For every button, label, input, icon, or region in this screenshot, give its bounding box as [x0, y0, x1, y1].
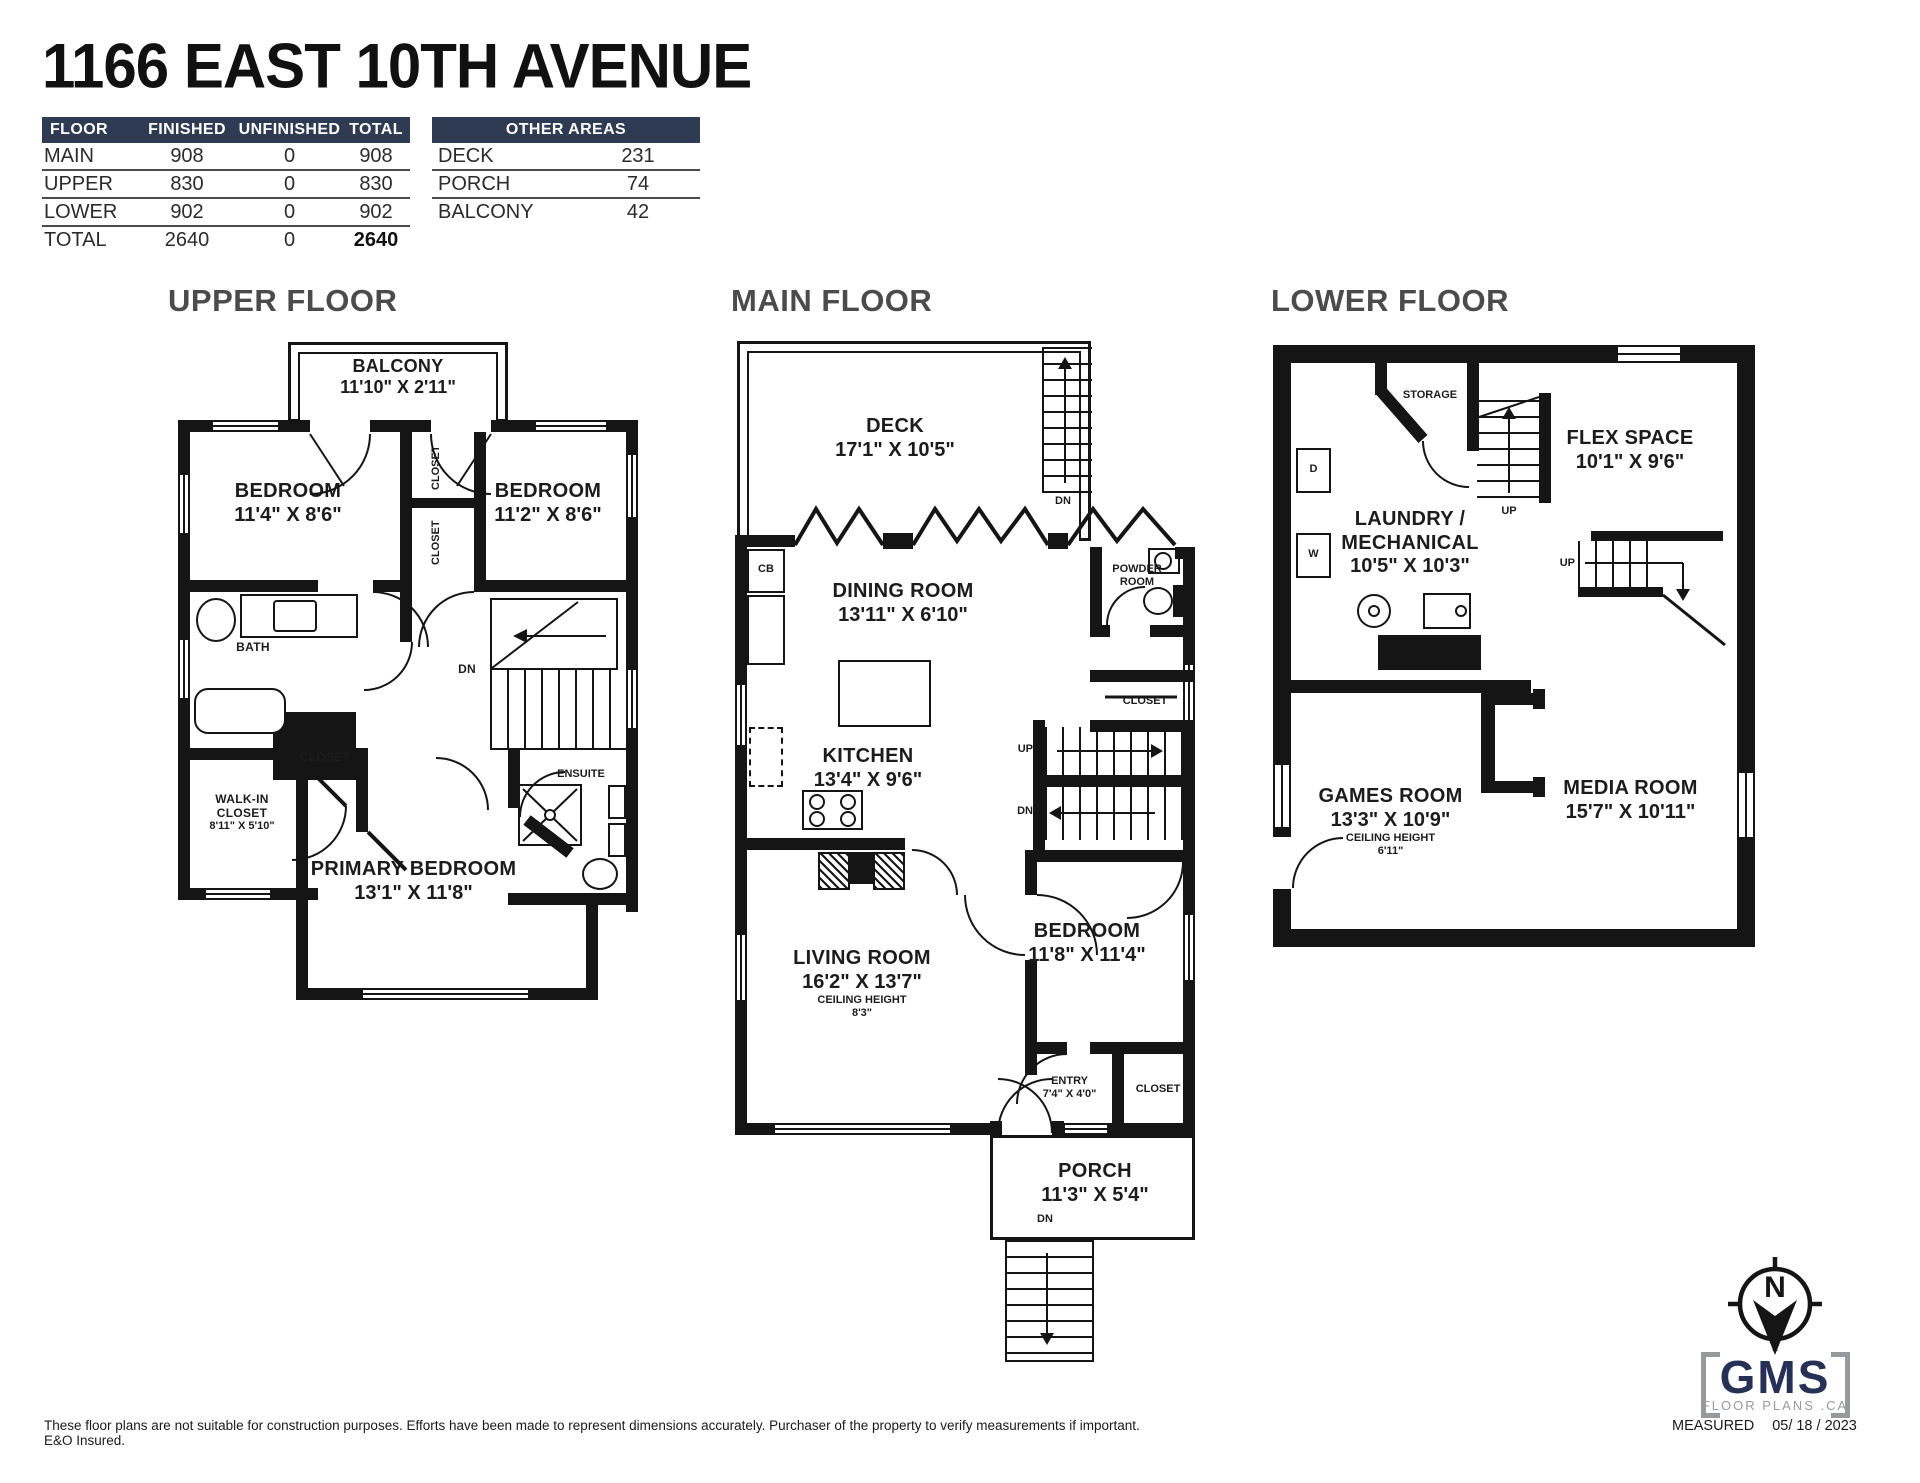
col-header-total: TOTAL — [342, 121, 410, 139]
accordion-door — [795, 509, 883, 545]
section-title-lower: LOWER FLOOR — [1271, 283, 1509, 319]
measured-line: MEASURED 05/ 18 / 2023 — [1672, 1418, 1857, 1434]
cell: 902 — [137, 201, 237, 224]
floor-plan-lower: STORAGE UP FLEX SPACE 10'1" X 9'6" D W L… — [1273, 345, 1755, 947]
other-areas-table: OTHER AREAS DECK 231 PORCH 74 BALCONY 42 — [432, 117, 700, 225]
chamfer-wall — [527, 820, 570, 853]
cell: PORCH — [432, 173, 582, 196]
door-arc — [431, 434, 491, 494]
section-title-main: MAIN FLOOR — [731, 283, 932, 319]
cell: 0 — [237, 173, 342, 196]
col-header-floor: FLOOR — [42, 121, 137, 139]
stair-arrow-head — [1040, 1333, 1054, 1345]
cell: 0 — [237, 229, 342, 252]
cell: 0 — [237, 201, 342, 224]
door-arc — [1423, 441, 1469, 487]
floor-area-table-header: FLOOR FINISHED UNFINISHED TOTAL — [42, 117, 410, 143]
measured-label: MEASURED — [1672, 1418, 1754, 1434]
table-row: BALCONY 42 — [432, 199, 700, 225]
door-arc — [310, 434, 370, 494]
cell: 830 — [342, 173, 410, 196]
stove-burner — [810, 812, 824, 826]
compass-icon: N — [1695, 1252, 1855, 1357]
door-leaf — [368, 832, 406, 870]
gms-logo: N GMS FLOOR PLANS .CA — [1695, 1252, 1855, 1412]
cell: 902 — [342, 201, 410, 224]
measured-date: 05/ 18 / 2023 — [1772, 1418, 1857, 1434]
shower-drain — [545, 810, 555, 820]
stove-burner — [810, 795, 824, 809]
other-areas-header: OTHER AREAS — [432, 117, 700, 143]
logo-text: GMS — [1695, 1350, 1855, 1404]
table-row: DECK 231 — [432, 143, 700, 171]
cell: 908 — [342, 145, 410, 168]
compass-arrow — [1753, 1300, 1797, 1355]
lower-floor-symbols — [1273, 345, 1755, 947]
door-arc — [1037, 895, 1097, 955]
furnace-inner — [1369, 606, 1379, 616]
cell: DECK — [432, 145, 582, 168]
stair-diagonal — [1663, 595, 1725, 645]
section-title-upper: UPPER FLOOR — [168, 283, 397, 319]
stove-burner — [841, 812, 855, 826]
table-row-total: TOTAL 2640 0 2640 — [42, 227, 410, 253]
main-floor-symbols — [735, 335, 1203, 1365]
cell: 231 — [582, 145, 694, 168]
logo-subtext: FLOOR PLANS .CA — [1695, 1398, 1855, 1413]
cell: 908 — [137, 145, 237, 168]
floor-area-table: FLOOR FINISHED UNFINISHED TOTAL MAIN 908… — [42, 117, 410, 253]
table-row: LOWER 902 0 902 — [42, 199, 410, 227]
cell: 42 — [582, 201, 694, 224]
stair-arrow-head — [1058, 357, 1072, 369]
compass-north-letter: N — [1764, 1271, 1786, 1304]
door-arc — [436, 758, 488, 810]
cell: 2640 — [342, 229, 410, 252]
col-header-finished: FINISHED — [137, 121, 237, 139]
cell: 74 — [582, 173, 694, 196]
accordion-door — [1068, 509, 1175, 545]
col-header-other-areas: OTHER AREAS — [506, 121, 626, 139]
cell: LOWER — [42, 201, 137, 224]
disclaimer-text: These floor plans are not suitable for c… — [44, 1418, 1144, 1448]
cell: UPPER — [42, 173, 137, 196]
stair-arrow-head — [1049, 806, 1061, 820]
upper-floor-symbols — [178, 340, 648, 1005]
door-arc — [1293, 838, 1343, 888]
table-row: MAIN 908 0 908 — [42, 143, 410, 171]
table-row: PORCH 74 — [432, 171, 700, 199]
door-arc — [1107, 587, 1145, 625]
floor-plan-page: 1166 EAST 10TH AVENUE FLOOR FINISHED UNF… — [0, 0, 1920, 1483]
floor-plan-upper: BALCONY 11'10" X 2'11" CLOSET CLOSET — [178, 340, 648, 1005]
door-arc — [364, 642, 412, 690]
powder-sink — [1155, 553, 1171, 569]
storage-diagonal-wall — [1381, 391, 1423, 439]
cell: BALCONY — [432, 201, 582, 224]
door-arc — [965, 895, 1025, 955]
cell: TOTAL — [42, 229, 137, 252]
cell: 830 — [137, 173, 237, 196]
page-title: 1166 EAST 10TH AVENUE — [42, 30, 751, 102]
cell: MAIN — [42, 145, 137, 168]
cell: 0 — [237, 145, 342, 168]
door-arc — [1127, 862, 1183, 918]
col-header-unfinished: UNFINISHED — [237, 121, 342, 139]
table-row: UPPER 830 0 830 — [42, 171, 410, 199]
door-leaf — [310, 434, 344, 486]
door-leaf — [457, 434, 491, 486]
door-arc — [912, 850, 957, 895]
stair-arrow-head — [513, 629, 527, 643]
stair-arrow-head — [1676, 589, 1690, 601]
furnace — [1358, 595, 1390, 627]
floor-plan-main: DECK 17'1" X 10'5" DN POWDER ROOM CB — [735, 335, 1203, 1365]
mechanical-dial — [1456, 606, 1466, 616]
door-arc — [520, 772, 565, 817]
stove-burner — [841, 795, 855, 809]
door-leaf — [308, 768, 346, 806]
cell: 2640 — [137, 229, 237, 252]
door-arc — [292, 806, 346, 860]
stair-arrow-head — [1151, 744, 1163, 758]
accordion-door — [913, 509, 1048, 545]
